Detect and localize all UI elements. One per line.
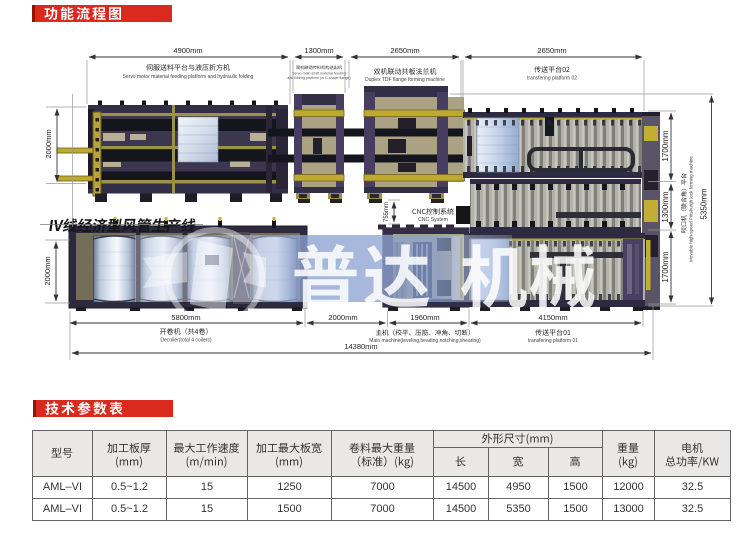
svg-text:4150mm: 4150mm	[538, 313, 567, 322]
svg-text:4900mm: 4900mm	[173, 46, 202, 55]
svg-text:Duplex TDF flange forming mach: Duplex TDF flange forming machine	[365, 77, 445, 83]
svg-text:CNC System: CNC System	[418, 217, 448, 223]
svg-text:2650mm: 2650mm	[390, 46, 419, 55]
svg-text:755mm: 755mm	[384, 202, 390, 222]
svg-text:Main machine(leveling,beading,: Main machine(leveling,beading,notching,s…	[369, 338, 481, 344]
svg-text:1300mm: 1300mm	[661, 191, 670, 222]
svg-text:Servo motor material feeding p: Servo motor material feeding platform an…	[123, 74, 254, 80]
svg-text:1700mm: 1700mm	[661, 130, 670, 161]
svg-text:transfering platform 01: transfering platform 01	[528, 338, 578, 344]
svg-text:1300mm: 1300mm	[304, 46, 333, 55]
svg-text:5350mm: 5350mm	[700, 188, 709, 219]
svg-text:transfering platform 02: transfering platform 02	[527, 76, 577, 82]
svg-text:1960mm: 1960mm	[410, 313, 439, 322]
svg-text:2650mm: 2650mm	[537, 46, 566, 55]
svg-text:5800mm: 5800mm	[171, 313, 200, 322]
svg-text:1700mm: 1700mm	[661, 251, 670, 282]
svg-text:Decoiler(total 4 coilers): Decoiler(total 4 coilers)	[160, 338, 211, 344]
svg-text:Servo main shaft material feed: Servo main shaft material feeding	[292, 72, 346, 76]
svg-text:and folding platform (in C-sha: and folding platform (in C-shape flange)	[287, 76, 350, 80]
svg-text:2000mm: 2000mm	[43, 256, 52, 285]
svg-text:2000mm: 2000mm	[328, 313, 357, 322]
svg-text:Movable high-speed Pittsburgh: Movable high-speed Pittsburgh lock formi…	[689, 156, 694, 262]
svg-text:2000mm: 2000mm	[44, 129, 53, 158]
